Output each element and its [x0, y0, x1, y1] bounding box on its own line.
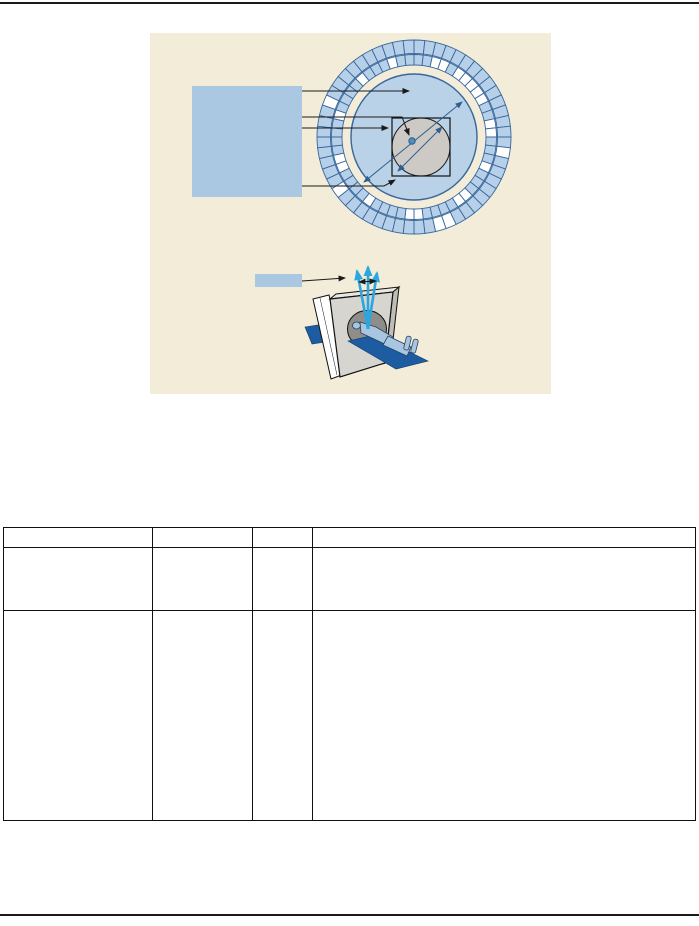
detector-segment	[332, 145, 344, 155]
beam-sweep-double-arrow	[359, 281, 376, 282]
spec-table-header-cell	[4, 528, 153, 548]
isocenter-dot	[409, 138, 415, 144]
detector-segment	[484, 119, 496, 129]
spec-table-cell	[313, 548, 696, 611]
detector-segment	[497, 126, 511, 137]
document-page	[0, 0, 699, 926]
patient-cross-section-circle	[392, 118, 450, 176]
spec-table-cell	[153, 611, 253, 821]
detector-segment	[317, 137, 331, 148]
detector-segment	[414, 209, 423, 220]
ring-callout-box	[192, 86, 302, 197]
header-rule	[0, 2, 699, 4]
detector-segment	[486, 128, 497, 137]
spec-table-header-cell	[253, 528, 313, 548]
scanner-callout-box	[255, 274, 302, 287]
spec-table-cell	[253, 611, 313, 821]
spec-table-row	[4, 548, 696, 611]
detector-segment	[403, 40, 414, 54]
spec-table-cell	[253, 548, 313, 611]
spec-table	[3, 527, 696, 821]
spec-table-cell	[4, 611, 153, 821]
spec-table-header-row	[4, 528, 696, 548]
spec-table-header-cell	[153, 528, 253, 548]
detector-segment	[422, 207, 432, 219]
detector-segment	[396, 55, 406, 67]
ct-scanner-illustration	[255, 267, 428, 379]
spec-table-row	[4, 611, 696, 821]
detector-segment	[405, 55, 414, 66]
spec-table-cell	[4, 548, 153, 611]
figure-panel	[150, 33, 551, 394]
spec-table-cell	[153, 548, 253, 611]
spec-table-header-cell	[313, 528, 696, 548]
detector-segment	[332, 137, 343, 146]
figure-svg	[150, 33, 551, 394]
callout-line-beam	[302, 278, 345, 281]
footer-rule	[0, 914, 699, 916]
detector-segment	[414, 220, 425, 234]
spec-table-cell	[313, 611, 696, 821]
detector-ring-diagram	[192, 40, 511, 234]
